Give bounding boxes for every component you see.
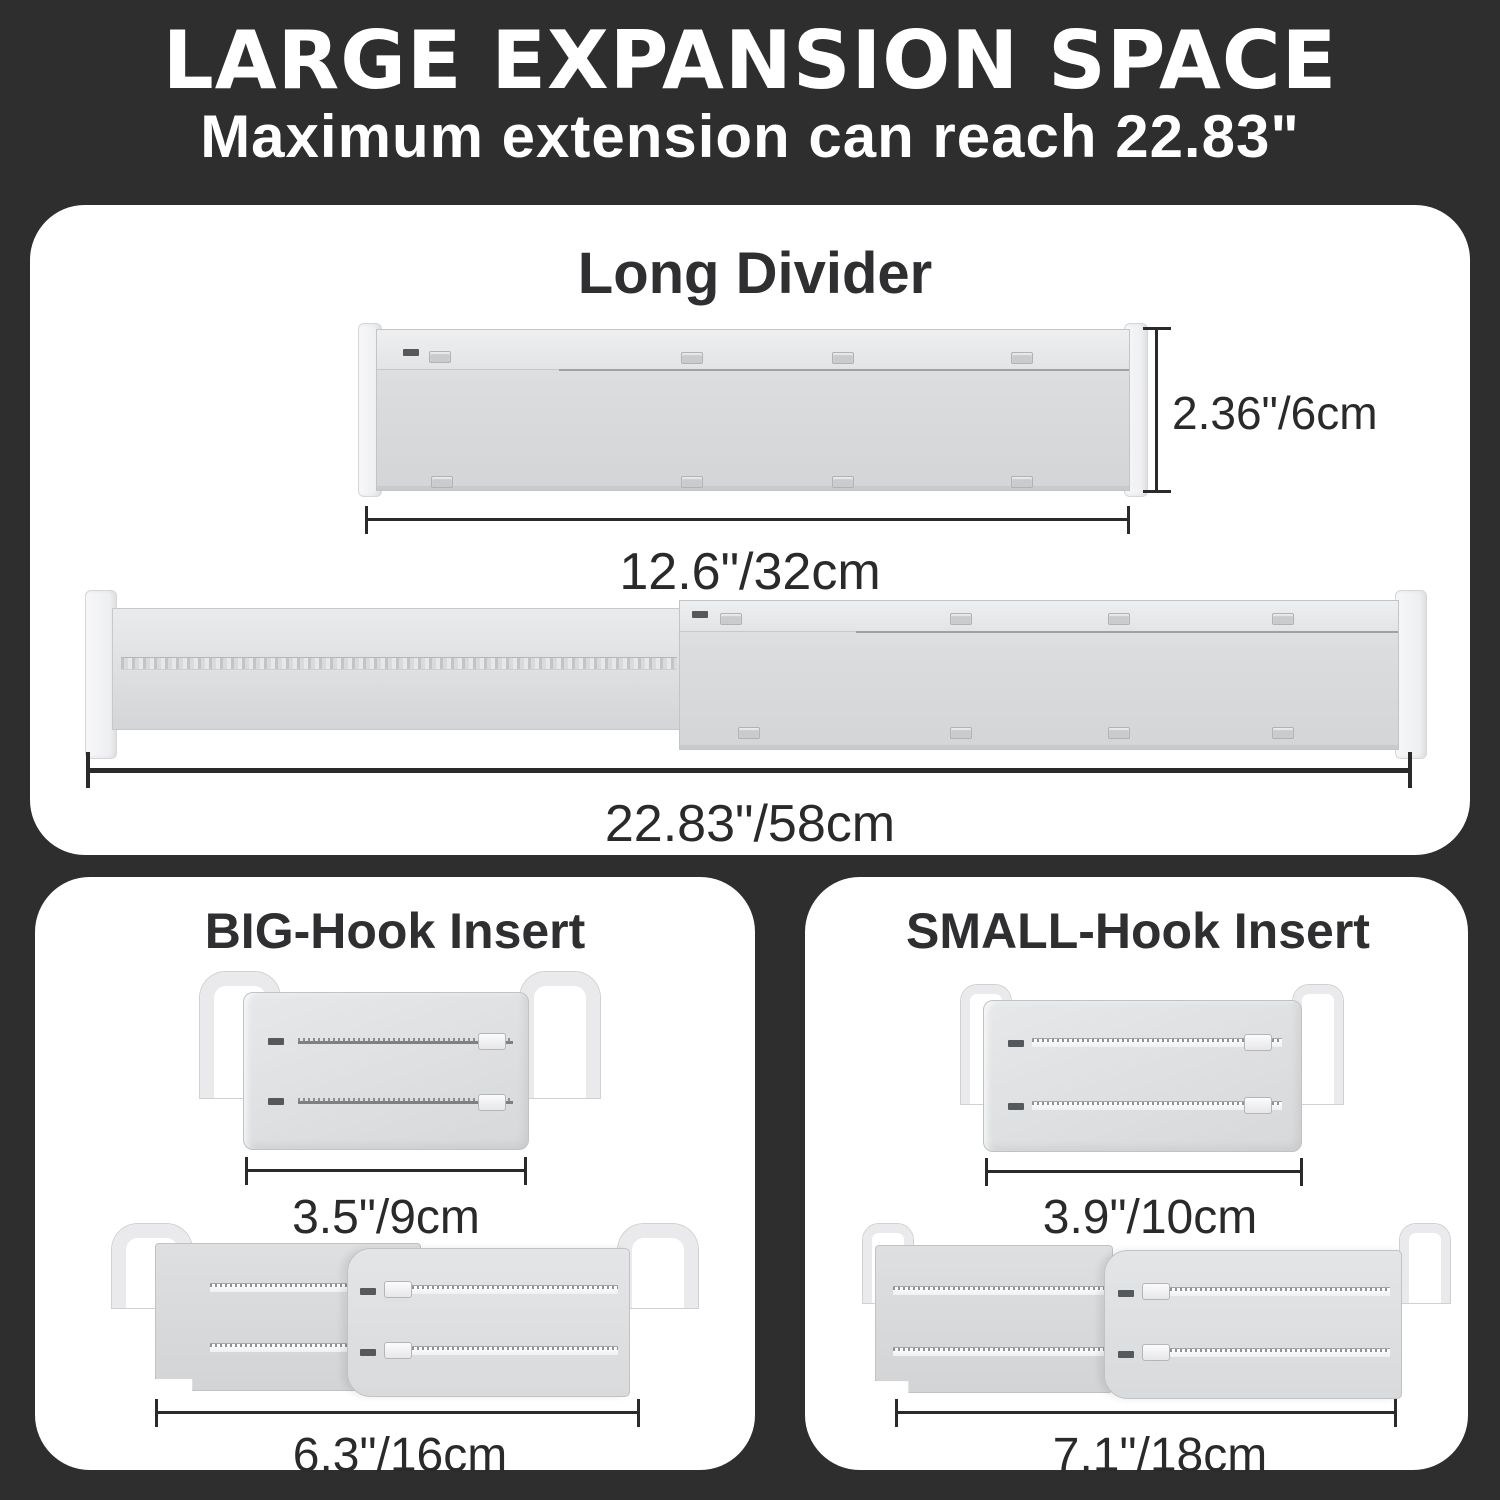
divider-clip — [681, 476, 703, 488]
small-collapsed-dimension-label: 3.9"/10cm — [1000, 1190, 1300, 1245]
height-dimension-line — [1155, 327, 1158, 493]
long-divider-heading: Long Divider — [355, 240, 1155, 307]
rail-slider — [384, 1281, 412, 1298]
divider-top-band — [377, 330, 1129, 370]
rail-slider — [1142, 1283, 1170, 1300]
serrated-rail — [893, 1347, 1109, 1356]
divider-inner-line — [856, 631, 1398, 633]
rail-slider — [384, 1342, 412, 1359]
rail-stop-dash — [268, 1038, 284, 1045]
extended-width-dimension-line — [86, 768, 1412, 773]
divider-clip — [1108, 727, 1130, 739]
big-collapsed-dimension-line — [245, 1169, 527, 1172]
small-extended-right-section — [1104, 1250, 1402, 1399]
small-extended-left-section — [875, 1245, 1113, 1393]
collapsed-divider-body — [376, 329, 1130, 491]
divider-clip — [681, 352, 703, 364]
collapsed-width-dimension-line — [365, 518, 1130, 521]
divider-clip — [1011, 476, 1033, 488]
big-extended-right-section — [347, 1248, 630, 1397]
divider-latch-dash — [403, 349, 419, 356]
rail-stop-dash — [1008, 1040, 1024, 1047]
rail-stop-dash — [268, 1098, 284, 1105]
divider-clip — [431, 476, 453, 488]
page-subtitle: Maximum extension can reach 22.83" — [0, 102, 1500, 171]
big-collapsed-dimension-label: 3.5"/9cm — [236, 1190, 536, 1245]
divider-clip — [1011, 352, 1033, 364]
small-extended-dimension-line — [895, 1411, 1397, 1414]
product-infographic: LARGE EXPANSION SPACE Maximum extension … — [0, 0, 1500, 1500]
divider-clip — [1272, 613, 1294, 625]
small-insert-body — [983, 1000, 1302, 1152]
divider-clip — [950, 727, 972, 739]
serrated-rail — [893, 1286, 1109, 1295]
divider-inner-line — [559, 369, 1129, 371]
big-hook-right — [618, 1224, 698, 1308]
rail-slider — [1244, 1097, 1272, 1114]
extended-divider-sleeve — [679, 600, 1399, 750]
rail-stop-dash — [1118, 1351, 1134, 1358]
rail-slider — [478, 1094, 506, 1111]
divider-clip — [950, 613, 972, 625]
collapsed-width-dimension-label: 12.6"/32cm — [430, 542, 1070, 602]
rail-stop-dash — [360, 1288, 376, 1295]
big-extended-dimension-line — [155, 1411, 640, 1414]
rail-slider — [1142, 1344, 1170, 1361]
extended-divider-inner-bar — [112, 608, 686, 730]
big-hook-heading: BIG-Hook Insert — [95, 902, 695, 960]
small-hook-right — [1400, 1224, 1450, 1303]
height-dimension-label: 2.36"/6cm — [1172, 386, 1392, 440]
divider-clip — [1272, 727, 1294, 739]
divider-clip — [738, 727, 760, 739]
serrated-rail — [412, 1285, 618, 1294]
page-title: LARGE EXPANSION SPACE — [0, 14, 1500, 107]
rail-stop-dash — [1008, 1103, 1024, 1110]
serrated-rail — [1170, 1348, 1390, 1357]
divider-clip — [720, 613, 742, 625]
big-hook-right — [520, 972, 600, 1098]
small-collapsed-dimension-line — [985, 1170, 1303, 1173]
divider-clip — [832, 476, 854, 488]
extended-width-dimension-label: 22.83"/58cm — [430, 794, 1070, 854]
rail-slider — [1244, 1034, 1272, 1051]
divider-clip — [832, 352, 854, 364]
big-insert-body — [243, 992, 529, 1150]
extended-divider-right-cap — [1395, 590, 1427, 759]
big-extended-dimension-label: 6.3"/16cm — [250, 1428, 550, 1483]
divider-clip — [1108, 613, 1130, 625]
rail-slider — [478, 1033, 506, 1050]
small-extended-dimension-label: 7.1"/18cm — [1000, 1428, 1320, 1483]
divider-latch-dash — [692, 611, 708, 618]
ratchet-rail — [121, 657, 677, 670]
serrated-rail — [412, 1346, 618, 1355]
divider-clip — [429, 351, 451, 363]
serrated-rail — [1170, 1287, 1390, 1296]
rail-stop-dash — [1118, 1290, 1134, 1297]
rail-stop-dash — [360, 1349, 376, 1356]
small-hook-heading: SMALL-Hook Insert — [828, 902, 1448, 960]
